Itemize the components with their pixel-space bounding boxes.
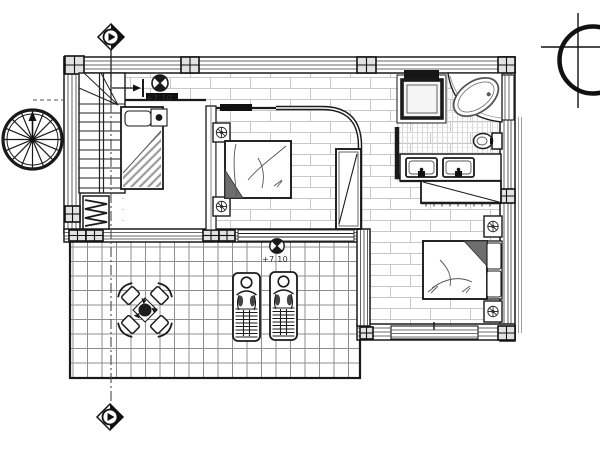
level-label-upper: +7.10 — [146, 94, 172, 103]
floor-plan-page: +7.10 +7.10 — [0, 0, 600, 460]
sun-lounger — [233, 273, 260, 341]
floor-plan-canvas: +7.10 +7.10 — [0, 0, 600, 460]
closet — [421, 181, 501, 207]
toilet — [474, 133, 503, 149]
single-bed — [121, 107, 167, 189]
section-marker-bottom-icon — [97, 404, 123, 430]
spiral-staircase-icon — [3, 100, 66, 169]
headboard — [216, 142, 225, 197]
north-arrow-icon — [541, 13, 600, 108]
shower-unit — [397, 70, 446, 123]
pillow — [487, 243, 501, 269]
level-marker-terrace-icon — [270, 239, 284, 253]
sun-lounger — [270, 272, 297, 340]
level-marker-upper-icon — [152, 75, 168, 91]
pillow — [487, 271, 501, 297]
terrace-floor — [70, 240, 360, 378]
section-marker-top-icon — [98, 24, 124, 50]
level-label-terrace: +7.10 — [262, 255, 288, 264]
door-leaf-bedroom1 — [220, 104, 252, 111]
pillow — [125, 111, 151, 126]
vanity-sinks — [400, 154, 501, 181]
